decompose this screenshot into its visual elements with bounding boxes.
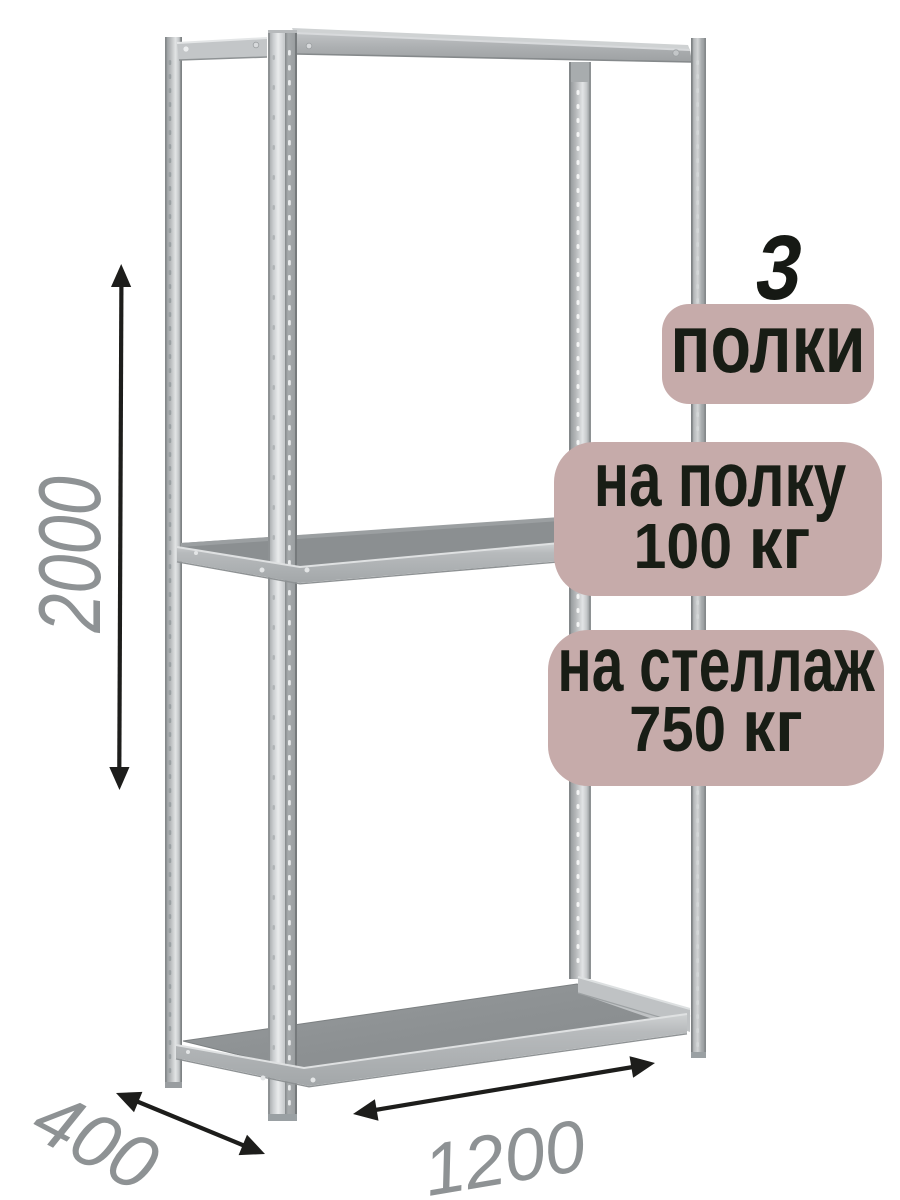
svg-text:2000: 2000 xyxy=(20,476,118,633)
svg-text:400: 400 xyxy=(19,1074,171,1200)
svg-text:1200: 1200 xyxy=(418,1105,592,1200)
